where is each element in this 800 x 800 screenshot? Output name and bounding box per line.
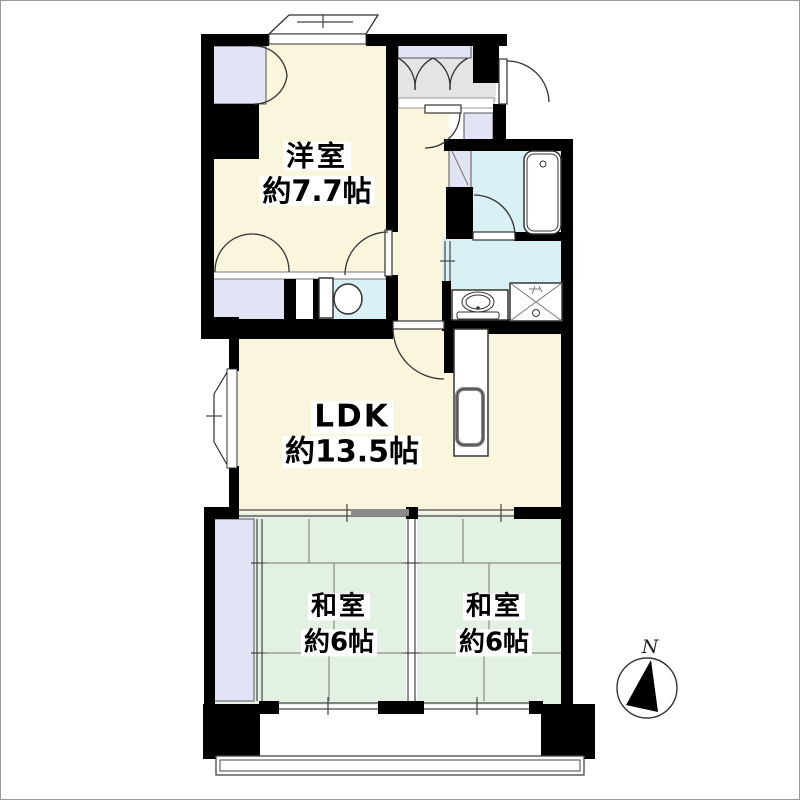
room-label-western-size: 約7.7帖 bbox=[259, 176, 374, 206]
room-label-ldk-size: 約13.5帖 bbox=[282, 436, 422, 468]
entrance-door bbox=[499, 59, 549, 104]
balcony-pillar-left bbox=[203, 704, 260, 759]
wall-segment bbox=[493, 104, 506, 145]
washbasin bbox=[452, 290, 508, 320]
floor-plan: 洋室 約7.7帖 LDK 約13.5帖 和室 約6帖 和室 約6帖 N bbox=[0, 0, 800, 800]
closet-western-top bbox=[213, 46, 266, 104]
wall-segment bbox=[386, 46, 398, 232]
wall-segment bbox=[444, 325, 454, 373]
wall-segment bbox=[514, 507, 573, 519]
wall-segment bbox=[201, 104, 259, 159]
closet-japanese bbox=[214, 519, 254, 701]
wall-segment bbox=[561, 147, 573, 707]
closet-sill-band bbox=[213, 272, 386, 279]
wall-segment bbox=[284, 279, 296, 323]
storage-box bbox=[294, 275, 316, 321]
room-label-ldk-name: LDK bbox=[311, 401, 393, 434]
wall-segment bbox=[229, 324, 239, 371]
kitchen-counter bbox=[454, 329, 488, 456]
room-label-japanese-right-size: 約6帖 bbox=[456, 629, 532, 656]
wall-segment bbox=[229, 466, 239, 513]
wall-segment bbox=[386, 275, 398, 324]
wall-segment bbox=[313, 279, 319, 323]
hall-closet bbox=[464, 113, 493, 141]
wall-segment bbox=[201, 34, 214, 324]
wall-segment bbox=[444, 139, 573, 151]
closet-western-bottom bbox=[213, 278, 285, 321]
compass bbox=[617, 658, 677, 718]
compass-north-label: N bbox=[642, 636, 659, 658]
balcony-pillar-right bbox=[541, 704, 595, 759]
wall-segment bbox=[473, 41, 499, 83]
room-label-japanese-right-name: 和室 bbox=[463, 593, 525, 620]
room-label-japanese-left-name: 和室 bbox=[308, 593, 370, 620]
room-label-japanese-left-size: 約6帖 bbox=[301, 629, 377, 656]
balcony-railing bbox=[216, 756, 584, 775]
wall-segment bbox=[446, 187, 473, 239]
wall-segment bbox=[378, 701, 424, 714]
bay-window-top bbox=[269, 14, 378, 44]
wall-segment bbox=[259, 701, 279, 714]
washing-machine-pan bbox=[510, 283, 562, 321]
wall-segment bbox=[204, 317, 239, 328]
wall-segment bbox=[204, 517, 215, 707]
bay-window-left bbox=[206, 369, 237, 468]
bathtub bbox=[524, 151, 561, 234]
floor-plan-drawing bbox=[1, 1, 799, 799]
room-label-western-name: 洋室 bbox=[283, 141, 351, 170]
wall-segment bbox=[529, 701, 543, 714]
